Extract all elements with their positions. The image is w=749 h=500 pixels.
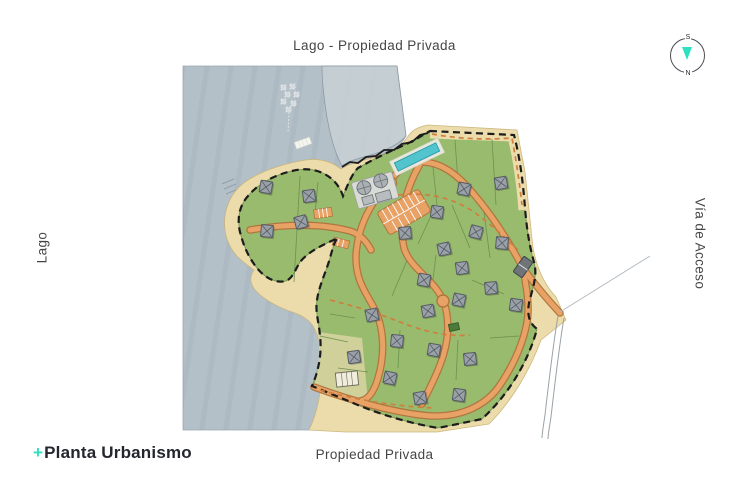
house-icon: [260, 224, 275, 239]
roundabout: [437, 295, 449, 307]
house-icon: [495, 236, 510, 251]
house-icon: [259, 180, 275, 196]
house-icon: [383, 371, 399, 387]
house-icon: [421, 304, 437, 320]
house-icon: [452, 293, 468, 309]
house-icon: [457, 182, 473, 198]
shed: [448, 323, 459, 332]
house-icon: [494, 176, 510, 192]
house-icon: [365, 308, 381, 324]
house-icon: [437, 242, 453, 258]
house-icon: [509, 298, 524, 313]
house-icon: [347, 350, 362, 365]
house-icon: [452, 388, 467, 403]
access-road: [542, 256, 650, 439]
house-icon: [413, 391, 429, 407]
house-icon: [430, 205, 445, 220]
house-icon: [463, 352, 478, 367]
house-icon: [302, 189, 317, 204]
house-icon: [398, 226, 413, 241]
title-lake-private-property: Lago - Propiedad Privada: [0, 38, 749, 53]
label-lake: Lago: [35, 188, 50, 308]
house-icon: [417, 273, 433, 289]
house-icon: [390, 334, 405, 349]
house-icon: [455, 261, 470, 276]
site-plan-page: Lago - Propiedad Privada Propiedad Priva…: [0, 0, 749, 500]
house-icon: [427, 343, 443, 359]
logo-plus-icon: +: [33, 443, 43, 462]
site-plan-map: [0, 0, 749, 500]
south-parking: [335, 371, 358, 387]
logo-text: Planta Urbanismo: [44, 443, 192, 462]
house-icon: [484, 281, 499, 296]
compass-north-label: N: [668, 70, 708, 77]
compass-south-label: S: [668, 34, 708, 41]
compass: S N: [668, 34, 708, 76]
label-access-road: Vía de Acceso: [693, 184, 708, 304]
logo-planta-urbanismo: +Planta Urbanismo: [33, 443, 192, 463]
compass-needle-icon: [682, 47, 692, 60]
